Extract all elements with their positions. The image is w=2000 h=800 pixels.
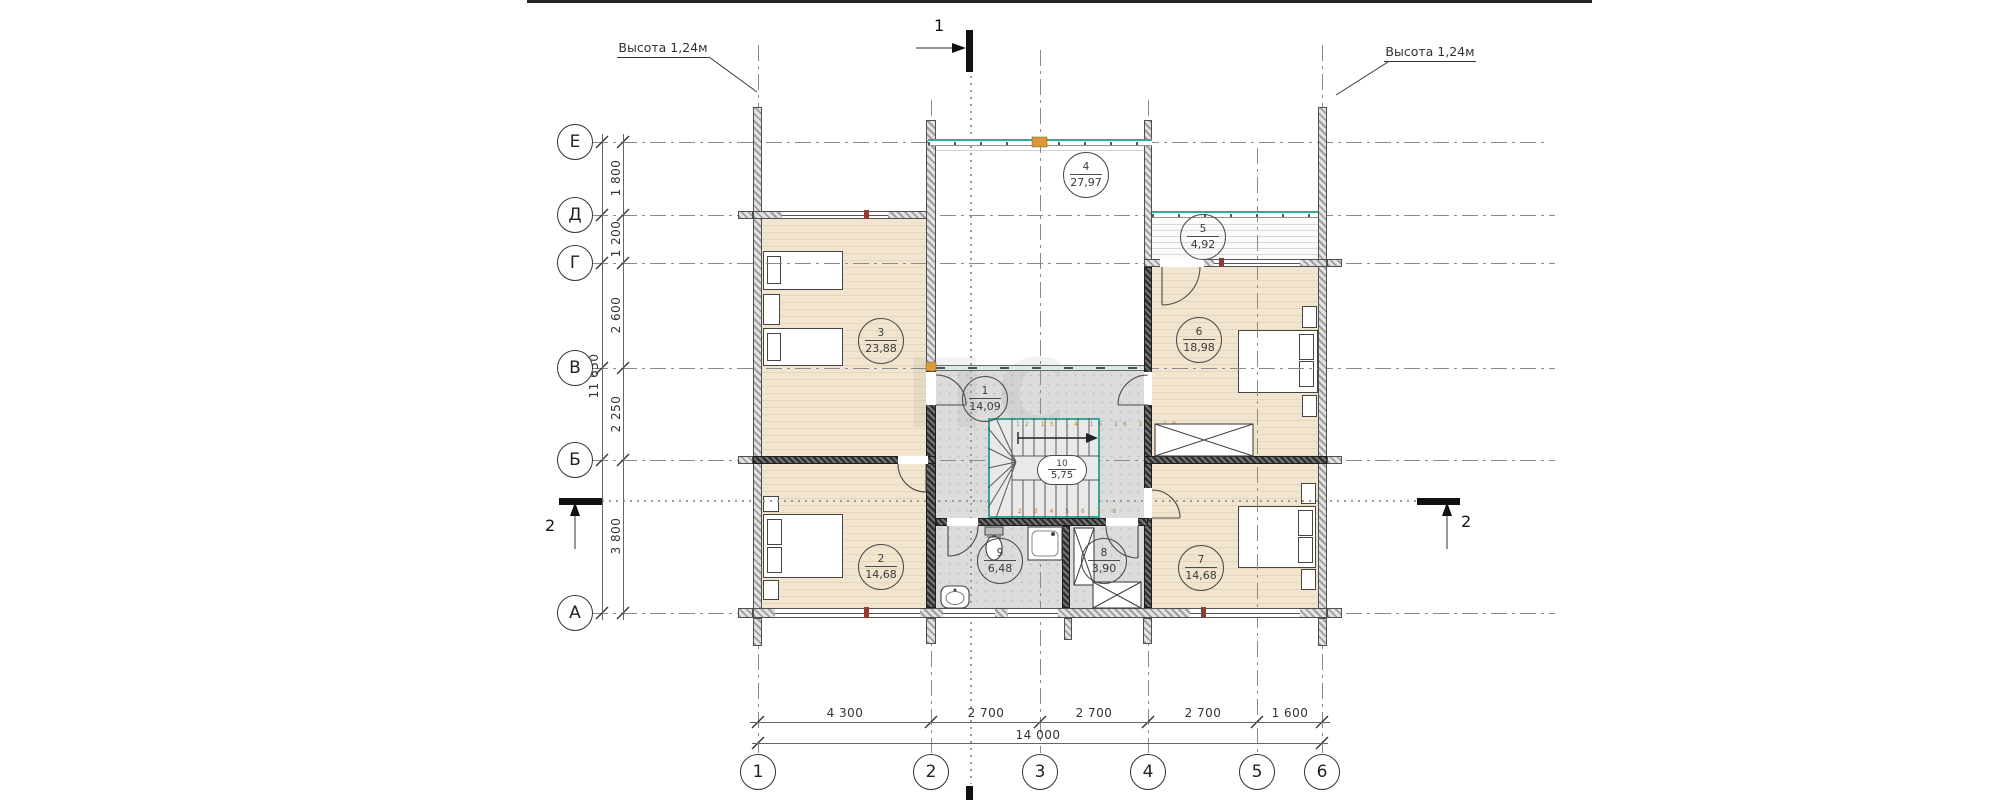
axis-col-label: 3 [1035,762,1046,782]
room-number: 9 [984,547,1016,561]
dim-bottom-2: 2 700 [1076,706,1113,720]
door-opening-room3 [926,372,936,405]
height-note-left: Высота 1,24м [617,40,709,58]
pillow [1298,537,1313,563]
window-room6 [1214,259,1300,267]
dim-left-0: 1 800 [609,160,623,197]
axis-row-label: Е [570,132,581,152]
axis-row-label: Д [568,205,581,225]
terrace-railing [928,139,1152,146]
room-area: 3,90 [1092,561,1117,575]
void-glass-guard [936,365,1144,371]
dim-bottom-total: 14 000 [1016,728,1061,742]
room-label-6: 618,98 [1176,317,1222,363]
pillow [1298,510,1313,536]
axis-row-label: А [569,603,581,623]
dim-bottom-3: 2 700 [1185,706,1222,720]
dim-bottom-1: 2 700 [968,706,1005,720]
axis-row-G: Г [557,245,593,281]
axis-col-5: 5 [1239,754,1275,790]
window-bath-bottom [943,608,995,618]
pillow [767,333,781,361]
dim-bottom-0: 4 300 [827,706,864,720]
dim-line-left-segments [623,134,624,620]
door-opening-room8 [1106,518,1138,526]
axis-col-2: 2 [913,754,949,790]
section-2-label-right: 2 [1461,512,1471,531]
dim-line-left-total [602,134,603,620]
balcony-5-floor [1152,219,1318,263]
section-1-marker-top [966,30,973,72]
window-room3 [782,211,888,219]
room-label-7: 714,68 [1178,545,1224,591]
room-label-8: 83,90 [1081,538,1127,584]
room-area: 23,88 [865,341,897,355]
section-1-cut-line [970,76,972,784]
nightstand [1301,569,1316,590]
pillow [767,547,782,573]
axis-row-V: В [557,350,593,386]
section-2-label-left: 2 [545,516,555,535]
room-number: 7 [1185,554,1217,568]
floor-plan-canvas: ПС 12 13 14 15 16 17 18 2 3 4 5 6 7 8 [0,0,2000,800]
room-label-3: 323,88 [858,318,904,364]
nightstand [763,496,779,512]
wall-stub [1327,259,1342,267]
pillow [1299,334,1314,360]
wall-stub [1327,456,1342,464]
nightstand [763,294,780,325]
room-label-1: 114,09 [962,376,1008,422]
dim-left-2: 2 600 [609,297,623,334]
connector-marks [926,137,1047,371]
wall-stub [738,456,753,464]
height-leaders [709,57,1388,95]
axis-row-label: Б [569,450,581,470]
dim-left-1: 1 200 [609,221,623,258]
nightstand [1302,306,1317,328]
axis-row-label: Г [570,253,580,273]
room-number: 5 [1187,223,1219,237]
room-area: 14,68 [865,567,897,581]
wall-stub [1318,618,1327,646]
door-opening-room7 [1144,488,1152,518]
room-label-2: 214,68 [858,544,904,590]
room-label-10-stairs: 105,75 [1037,455,1087,485]
section-1-label: 1 [934,16,944,35]
dim-left-4: 3 800 [609,518,623,555]
wall-stub [753,618,762,646]
axis-col-3: 3 [1022,754,1058,790]
room-area: 18,98 [1183,340,1215,354]
axis-col-label: 1 [753,762,764,782]
window-room7-bottom [1190,608,1300,618]
wall-stub [1143,618,1152,644]
axis-row-B: Б [557,442,593,478]
section-2-marker-right [1417,498,1460,505]
room-number: 3 [865,327,897,341]
room-area: 27,97 [1070,175,1102,189]
room-label-4: 427,97 [1063,152,1109,198]
door-opening-room6 [1144,372,1152,405]
room-number: 2 [865,553,897,567]
room-number: 6 [1183,326,1215,340]
axis-col-label: 2 [926,762,937,782]
wall-hall-left [926,370,936,608]
axis-row-A: А [557,595,593,631]
wall-stub [1064,618,1072,640]
axis-row-E: Е [557,124,593,160]
room-area: 14,68 [1185,568,1217,582]
dim-line-bottom-total [752,743,1328,744]
wall-stub [1327,608,1342,618]
door-opening-bath [947,518,978,526]
room-number: 10 [1048,459,1077,470]
stair-step-numbers-top: 12 13 14 15 16 17 18 [1016,421,1181,428]
axis-line-5 [1257,148,1258,753]
axis-col-1: 1 [740,754,776,790]
dim-line-bottom-segments [750,722,1330,723]
wall-terrace-post-left [926,120,936,370]
door-opening-balcony5 [1160,259,1204,267]
wall-bath-divider [1062,526,1070,608]
axis-col-label: 4 [1143,762,1154,782]
axis-row-D: Д [557,197,593,233]
window-room2-bottom [775,608,920,618]
pillow [1299,361,1314,387]
door-opening-room2 [898,456,928,464]
window-bath-bottom-2 [1008,608,1058,618]
pillow [767,519,782,545]
wall-left-outer [753,107,762,618]
balcony-railing [1152,211,1318,218]
room-label-5: 54,92 [1180,214,1226,260]
room-number: 1 [969,385,1001,399]
stair-step-numbers-bottom: 2 3 4 5 6 7 8 [1018,508,1121,515]
wall-B-right [1144,456,1327,464]
wall-stub [926,618,936,644]
axis-line-G [592,263,1555,264]
nightstand [763,580,779,600]
room-label-9: 96,48 [977,538,1023,584]
room-area: 14,09 [969,399,1001,413]
nightstand [1302,395,1317,417]
dim-left-3: 2 250 [609,396,623,433]
height-note-right: Высота 1,24м [1384,44,1476,62]
room-number: 4 [1070,161,1102,175]
room-area: 5,75 [1051,470,1073,482]
section-1-marker-bottom [966,786,973,800]
wall-hall-right [1144,267,1152,608]
pillow [767,256,781,284]
axis-col-label: 6 [1317,762,1328,782]
top-border-line [527,0,1592,3]
axis-col-label: 5 [1252,762,1263,782]
room-number: 8 [1088,547,1120,561]
dim-bottom-4: 1 600 [1272,706,1309,720]
room-area: 6,48 [988,561,1013,575]
axis-col-4: 4 [1130,754,1166,790]
axis-line-3 [1040,50,1041,753]
wall-stub [738,211,753,219]
axis-row-label: В [569,358,581,378]
wall-stub [738,608,753,618]
wall-right-outer [1318,107,1327,618]
room-area: 4,92 [1191,237,1216,251]
axis-col-6: 6 [1304,754,1340,790]
axis-line-D [592,215,1555,216]
section-2-marker-left [559,498,602,505]
